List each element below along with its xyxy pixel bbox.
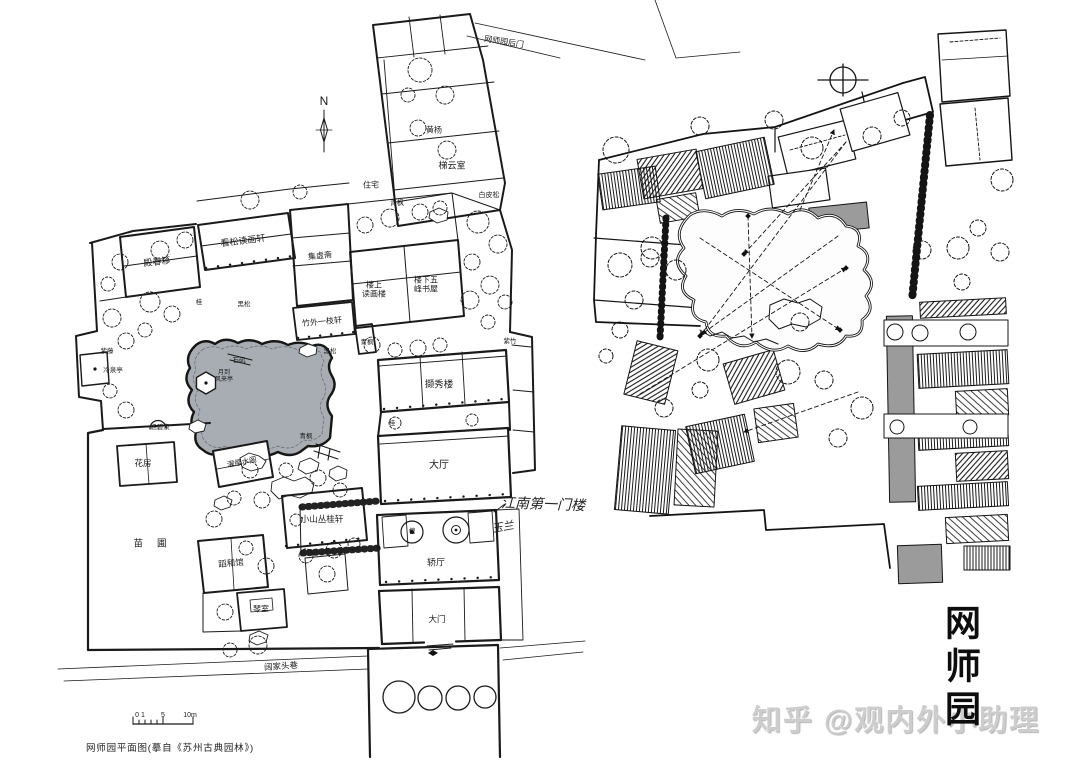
label-maple-s: 青枫 [300, 433, 313, 441]
label-maple-mid: 青枫 [361, 339, 374, 347]
label-maple-nw: 青枫 [390, 200, 404, 208]
label-black-pine-e: 黑松 [324, 348, 337, 356]
annotation-gatehouse: 江南第一门楼 [501, 495, 586, 514]
label-boxwood: 黄杨 [426, 125, 442, 134]
label-qin-room: 琴室 [253, 604, 269, 613]
label-main-gate: 大门 [428, 614, 445, 624]
plan-caption: 网师园平面图(摹自《苏州古典园林》) [86, 740, 254, 754]
label-osmanthus-n: 桂 [196, 299, 203, 307]
scale-left: 0 1 [135, 712, 145, 720]
label-main-hall: 大厅 [429, 460, 449, 472]
label-xiaoshan-xuan: 小山丛桂轩 [301, 514, 344, 524]
label-osmanthus-s: 桂 [389, 420, 396, 428]
label-cold-spring-pav: 冷泉亭 [103, 367, 123, 375]
label-sedan-hall: 轿厅 [427, 558, 445, 569]
label-moon-wind-pav: 月到 风来亭 [215, 370, 233, 384]
label-hanbi-spring: 涵碧泉 [150, 424, 170, 432]
label-tiyun-room: 梯云室 [438, 161, 465, 172]
page: 网师园后门 N 住宅 黄杨 梯云室 白皮松 青枫 殿春簃 看松读画轩 集虚斋 楼… [0, 0, 1080, 763]
north-compass [316, 110, 332, 152]
label-flower-house: 花房 [134, 458, 151, 468]
label-wisteria: 紫藤 [101, 348, 114, 356]
label-pagoda-tree: 槐 [409, 528, 416, 536]
label-xiexiu-tower: 撷秀楼 [425, 379, 454, 390]
right-plan-drawing [594, 30, 1013, 584]
label-purple-bamboo: 紫竹 [504, 338, 517, 346]
scale-mid: 5 [161, 712, 165, 720]
label-north: N [320, 94, 329, 108]
scale-right: 10m [183, 712, 197, 720]
label-residence: 住宅 [363, 180, 379, 189]
label-nursery: 苗圃 [119, 538, 180, 549]
label-white-pine: 白皮松 [479, 192, 500, 200]
page-title-vertical: 网师园 [944, 604, 986, 733]
right-north-symbol [818, 64, 868, 96]
label-duhua-tower: 楼上 读画楼 [362, 281, 386, 300]
label-wufeng-study: 楼下五 峰书屋 [414, 276, 438, 295]
label-black-pine-w: 黑松 [238, 301, 251, 309]
label-stone-jetty: 石矶 [233, 357, 246, 365]
watermark: 知乎 @观内外小助理 [752, 697, 1040, 739]
garden-plan-drawings [0, 0, 1080, 763]
